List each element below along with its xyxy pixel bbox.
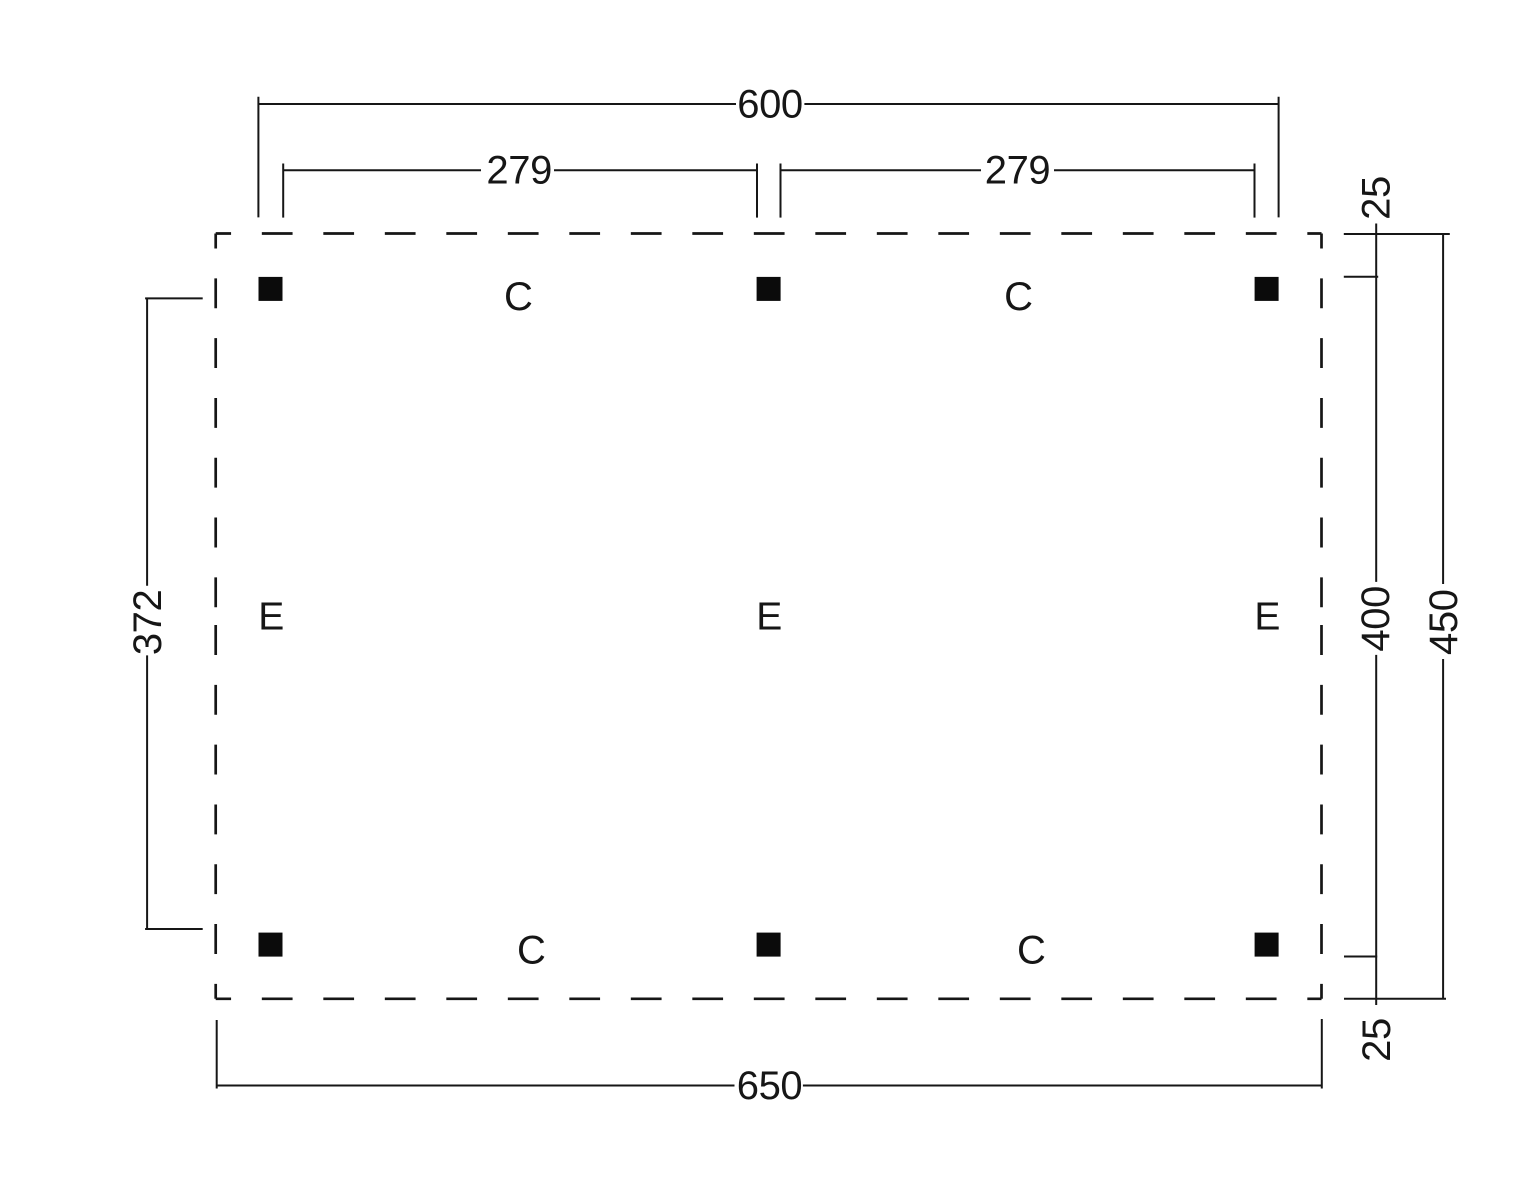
svg-text:600: 600 [737, 82, 803, 126]
svg-text:C: C [504, 275, 533, 319]
svg-text:E: E [756, 595, 782, 638]
svg-text:279: 279 [985, 149, 1051, 193]
svg-text:25: 25 [1355, 176, 1399, 220]
svg-text:450: 450 [1422, 589, 1466, 655]
svg-text:279: 279 [486, 149, 552, 193]
svg-text:C: C [517, 928, 546, 972]
svg-text:372: 372 [126, 590, 170, 656]
svg-text:E: E [258, 595, 284, 638]
svg-text:C: C [1017, 928, 1046, 972]
svg-text:25: 25 [1355, 1018, 1399, 1062]
svg-text:E: E [1254, 595, 1280, 638]
svg-text:650: 650 [737, 1064, 803, 1108]
svg-text:C: C [1004, 275, 1033, 319]
svg-text:400: 400 [1354, 586, 1398, 652]
